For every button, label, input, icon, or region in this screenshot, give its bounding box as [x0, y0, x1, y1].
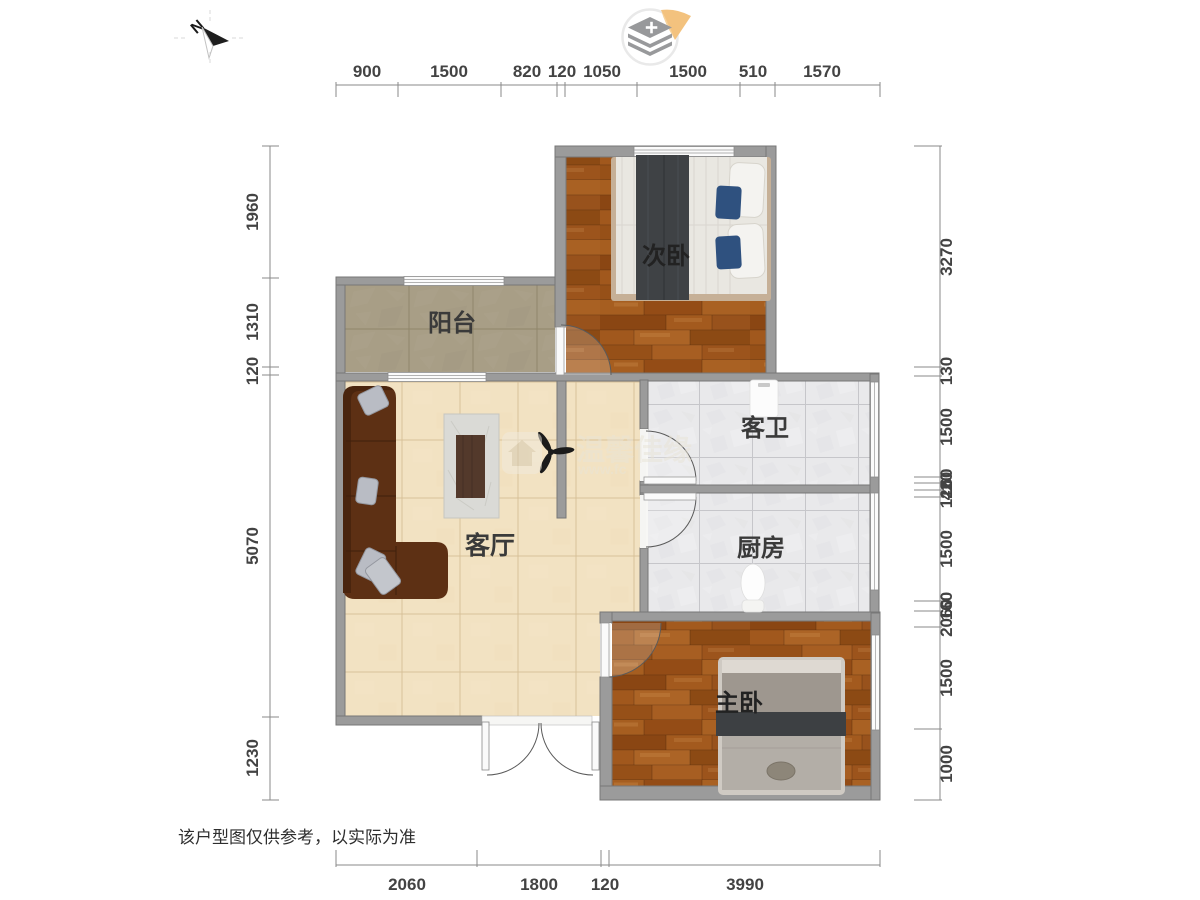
- svg-text:1500: 1500: [937, 530, 956, 568]
- svg-text:厨房: 厨房: [737, 534, 785, 562]
- svg-text:900: 900: [353, 62, 381, 81]
- svg-text:1000: 1000: [937, 745, 956, 783]
- svg-text:1570: 1570: [803, 62, 841, 81]
- svg-text:820: 820: [513, 62, 541, 81]
- svg-text:1050: 1050: [583, 62, 621, 81]
- svg-text:1500: 1500: [937, 408, 956, 446]
- svg-text:5070: 5070: [243, 527, 262, 565]
- svg-text:1310: 1310: [243, 303, 262, 341]
- svg-text:客厅: 客厅: [465, 531, 515, 560]
- svg-text:120: 120: [548, 62, 576, 81]
- svg-text:www.fc: www.fc: [577, 461, 627, 477]
- svg-text:3990: 3990: [726, 875, 764, 894]
- svg-text:2060: 2060: [388, 875, 426, 894]
- svg-text:主卧: 主卧: [715, 690, 763, 717]
- svg-text:1230: 1230: [243, 739, 262, 777]
- svg-text:1800: 1800: [520, 875, 558, 894]
- svg-text:2060: 2060: [937, 599, 956, 637]
- svg-text:130: 130: [937, 357, 956, 385]
- svg-text:1960: 1960: [243, 193, 262, 231]
- svg-text:阳台: 阳台: [428, 309, 476, 337]
- svg-text:1500: 1500: [430, 62, 468, 81]
- svg-text:次卧: 次卧: [642, 243, 690, 270]
- svg-text:120: 120: [591, 875, 619, 894]
- svg-text:3270: 3270: [937, 238, 956, 276]
- svg-text:120: 120: [937, 480, 956, 508]
- svg-text:510: 510: [739, 62, 767, 81]
- svg-text:120: 120: [243, 357, 262, 385]
- svg-text:该户型图仅供参考，以实际为准: 该户型图仅供参考，以实际为准: [178, 828, 416, 847]
- svg-text:1500: 1500: [937, 659, 956, 697]
- svg-text:客卫: 客卫: [741, 414, 789, 442]
- svg-text:1500: 1500: [669, 62, 707, 81]
